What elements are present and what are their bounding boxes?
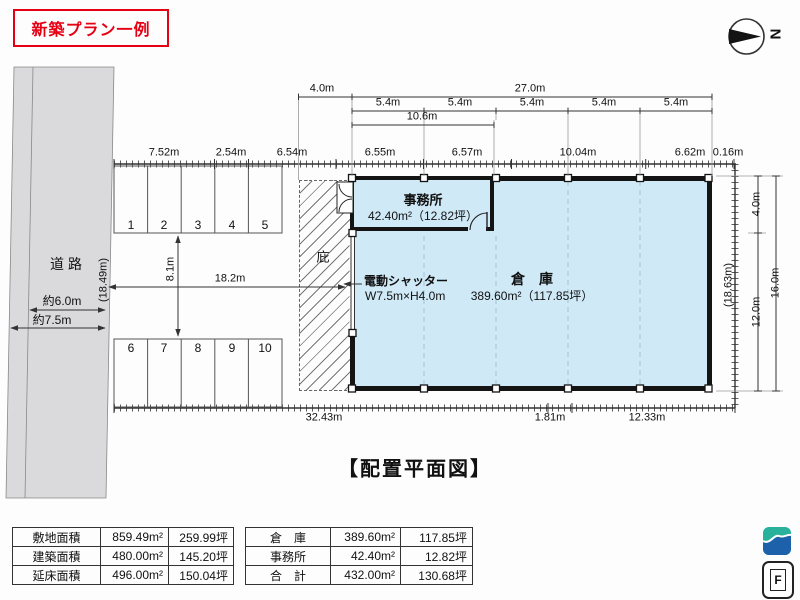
company-logo [763, 527, 791, 555]
table-row: 延床面積496.00m²150.04坪 [13, 566, 234, 585]
dim-boundary-seg-4: 6.55m [365, 148, 396, 159]
area-sqm: 42.40m² [331, 547, 401, 566]
dim-yard-width: 18.2m [215, 274, 246, 285]
area-tsubo: 130.68坪 [401, 566, 473, 585]
area-sqm: 496.00m² [101, 566, 169, 585]
dim-boundary-seg-6: 10.04m [560, 148, 597, 159]
table-row: 事務所42.40m²12.82坪 [246, 547, 473, 566]
table-row: 建築面積480.00m²145.20坪 [13, 547, 234, 566]
dim-west-boundary: (18.49m) [99, 258, 110, 302]
area-tsubo: 150.04坪 [169, 566, 234, 585]
warehouse-area: 389.60m²（117.85坪） [471, 290, 594, 302]
office-label: 事務所 [403, 194, 442, 207]
area-tsubo: 12.82坪 [401, 547, 473, 566]
canopy-label: 庇 [316, 251, 329, 264]
parking-space-5: 5 [262, 219, 269, 231]
area-sqm: 859.49m² [101, 528, 169, 547]
dim-bay-4: 5.4m [592, 98, 616, 109]
dim-bay-5: 5.4m [664, 98, 688, 109]
parking-space-2: 2 [161, 219, 168, 231]
dim-office-width: 10.6m [407, 112, 438, 123]
dim-bay-1: 5.4m [376, 98, 400, 109]
row-label: 倉 庫 [246, 528, 331, 547]
area-sqm: 480.00m² [101, 547, 169, 566]
company-logo-mark [763, 527, 791, 555]
north-label: N [767, 29, 784, 40]
road-label: 道 路 [50, 257, 82, 271]
plan-labels-layer: 4.0m27.0m5.4m5.4m5.4m5.4m5.4m10.6m7.52m2… [0, 0, 800, 600]
table-row: 合 計432.00m²130.68坪 [246, 566, 473, 585]
area-tsubo: 145.20坪 [169, 547, 234, 566]
dim-office-depth: 4.0m [752, 192, 763, 216]
dim-bottom-1: 32.43m [306, 413, 343, 424]
f-logo-letter: F [774, 573, 781, 587]
area-tsubo: 259.99坪 [169, 528, 234, 547]
parking-space-10: 10 [258, 342, 271, 354]
site-area-table: 敷地面積859.49m²259.99坪建築面積480.00m²145.20坪延床… [12, 527, 234, 585]
parking-space-4: 4 [229, 219, 236, 231]
shutter-label: 電動シャッター [364, 275, 448, 287]
dim-warehouse-depth: 12.0m [752, 297, 763, 328]
drawing-caption: 【配置平面図】 [338, 453, 492, 482]
row-label: 敷地面積 [13, 528, 101, 547]
row-label: 延床面積 [13, 566, 101, 585]
table-row: 敷地面積859.49m²259.99坪 [13, 528, 234, 547]
warehouse-label: 倉 庫 [511, 272, 553, 286]
road-width-2: 約7.5m [33, 314, 72, 326]
area-sqm: 389.60m² [331, 528, 401, 547]
area-tsubo: 117.85坪 [401, 528, 473, 547]
dim-building-depth: 16.0m [771, 268, 782, 299]
road-width-1: 約6.0m [43, 295, 82, 307]
parking-space-9: 9 [229, 342, 236, 354]
dim-east-boundary: (18.63m) [724, 263, 735, 307]
dim-bay-2: 5.4m [448, 98, 472, 109]
parking-space-7: 7 [161, 342, 168, 354]
f-logo: F [762, 561, 794, 599]
dim-boundary-seg-1: 7.52m [149, 148, 180, 159]
table-row: 倉 庫389.60m²117.85坪 [246, 528, 473, 547]
dim-boundary-seg-8: 0.16m [713, 148, 744, 159]
dim-bottom-2: 1.81m [535, 413, 566, 424]
parking-space-1: 1 [128, 219, 135, 231]
dim-yard-depth: 8.1m [166, 257, 177, 281]
dim-bay-3: 5.4m [520, 98, 544, 109]
dim-boundary-seg-2: 2.54m [216, 148, 247, 159]
parking-space-6: 6 [128, 342, 135, 354]
dim-canopy-width: 4.0m [310, 84, 334, 95]
parking-space-3: 3 [195, 219, 202, 231]
area-sqm: 432.00m² [331, 566, 401, 585]
dim-boundary-seg-5: 6.57m [452, 148, 483, 159]
f-logo-document-icon: F [770, 569, 786, 591]
row-label: 建築面積 [13, 547, 101, 566]
row-label: 事務所 [246, 547, 331, 566]
dim-bottom-3: 12.33m [629, 413, 666, 424]
office-area: 42.40m²（12.82坪） [368, 210, 478, 222]
dim-building-width: 27.0m [515, 84, 546, 95]
parking-space-8: 8 [195, 342, 202, 354]
row-label: 合 計 [246, 566, 331, 585]
building-area-table: 倉 庫389.60m²117.85坪事務所42.40m²12.82坪合 計432… [245, 527, 473, 585]
dim-boundary-seg-7: 6.62m [675, 148, 706, 159]
dim-boundary-seg-3: 6.54m [277, 148, 308, 159]
shutter-size: W7.5m×H4.0m [365, 290, 445, 302]
site-plan-page: 新築プラン一例 [0, 0, 800, 600]
